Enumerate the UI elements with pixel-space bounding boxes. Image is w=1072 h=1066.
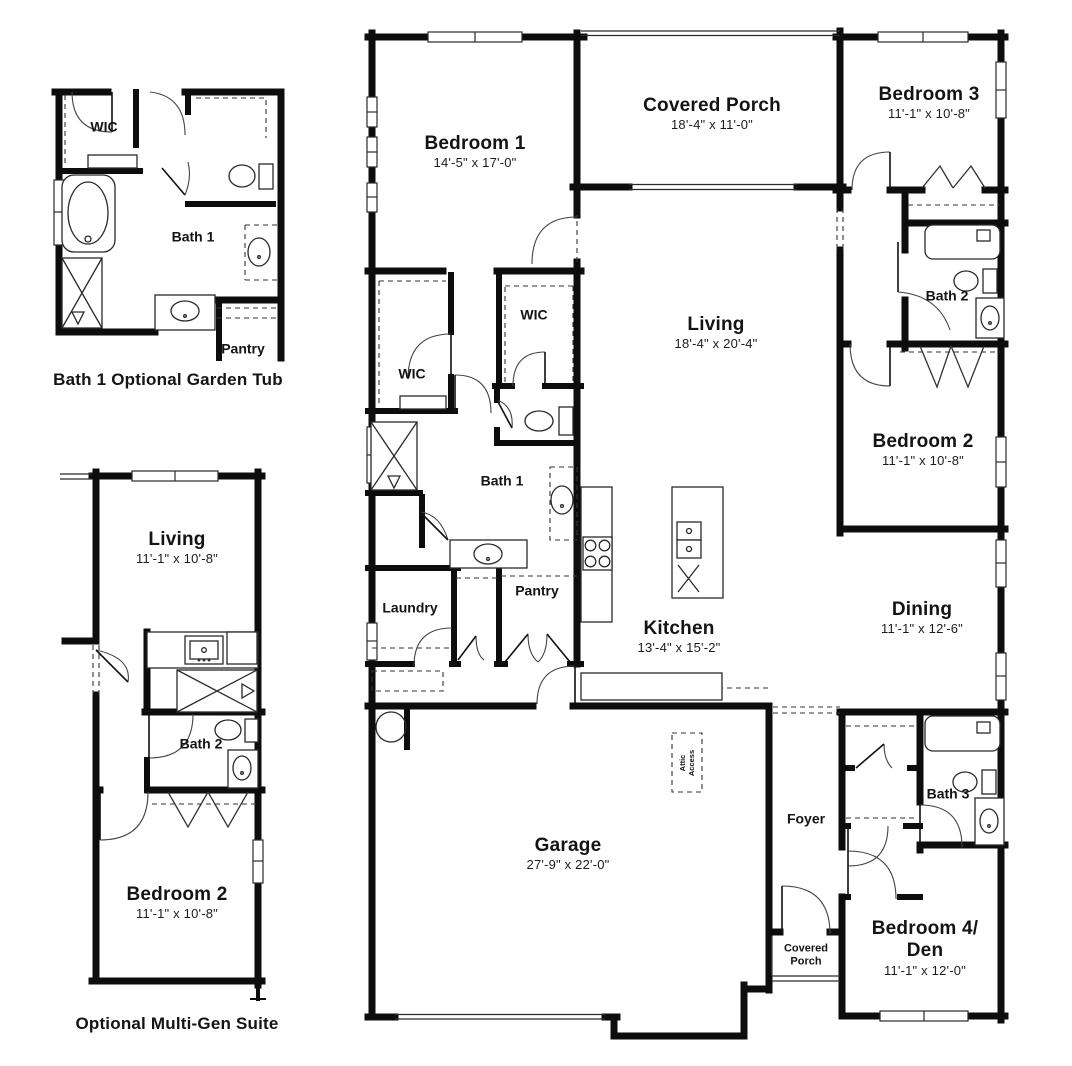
- inset-a-caption: Bath 1 Optional Garden Tub: [53, 370, 283, 390]
- floorplan-page: Bedroom 1 14'-5" x 17'-0" Covered Porch …: [0, 0, 1072, 1066]
- room-dims: 18'-4" x 11'-0": [643, 118, 781, 133]
- room-name: Dining: [881, 599, 963, 621]
- room-name: Bedroom 2: [872, 431, 973, 453]
- room-name: Living: [136, 529, 218, 551]
- room-label-bedroom2: Bedroom 2 11'-1" x 10'-8": [872, 431, 973, 469]
- inset-b-label-living: Living 11'-1" x 10'-8": [136, 529, 218, 567]
- room-label-pantry: Pantry: [515, 583, 559, 600]
- room-dims: 27'-9" x 22'-0": [527, 858, 610, 873]
- bathtub-icon: [925, 225, 1000, 259]
- garden-tub-icon: [62, 175, 115, 252]
- room-label-covered-porch: Covered Porch 18'-4" x 11'-0": [643, 95, 781, 133]
- porch-line2: Porch: [784, 955, 828, 968]
- inset-a-label-pantry: Pantry: [221, 341, 265, 358]
- sink-icon: [228, 750, 258, 788]
- room-label-bath2: Bath 2: [926, 288, 969, 305]
- bathtub-icon: [925, 716, 1000, 751]
- room-label-bedroom3: Bedroom 3 11'-1" x 10'-8": [878, 84, 979, 122]
- room-label-wic-top: WIC: [520, 307, 547, 324]
- fixtures-inset-garden-tub: [62, 155, 273, 330]
- room-dims: 11'-1" x 10'-8": [126, 907, 227, 922]
- wic-bench: [88, 155, 137, 168]
- sink-icon: [551, 486, 573, 514]
- inset-a-label-bath1: Bath 1: [172, 229, 215, 246]
- water-heater-icon: [376, 712, 406, 742]
- door-swings: [72, 92, 985, 934]
- island-sink-icon: [677, 522, 701, 558]
- fixtures-bath1: [371, 396, 573, 568]
- room-name: Garage: [527, 835, 610, 857]
- shower-icon: [371, 422, 417, 490]
- range-icon: [583, 537, 612, 570]
- room-name-line1: Bedroom 4/: [872, 918, 979, 940]
- wic-bench: [400, 396, 446, 409]
- room-label-wic-left: WIC: [398, 366, 425, 383]
- kitchenette-cabinet: [227, 632, 257, 664]
- vanity-sink-icon: [450, 540, 527, 568]
- room-name-line2: Den: [872, 940, 979, 962]
- room-label-bath3: Bath 3: [927, 786, 970, 803]
- room-name: Living: [675, 314, 758, 336]
- inset-b-caption: Optional Multi-Gen Suite: [75, 1014, 278, 1034]
- room-label-bath1: Bath 1: [481, 473, 524, 490]
- room-label-bedroom4-den: Bedroom 4/ Den 11'-1" x 12'-0": [872, 918, 979, 978]
- room-dims: 11'-1" x 10'-8": [872, 454, 973, 469]
- room-label-covered-porch-bottom: Covered Porch: [784, 942, 828, 967]
- room-label-garage: Garage 27'-9" x 22'-0": [527, 835, 610, 873]
- room-dims: 11'-1" x 10'-8": [136, 552, 218, 567]
- sink-icon: [248, 238, 270, 266]
- shower-icon: [62, 258, 102, 328]
- room-dims: 18'-4" x 20'-4": [675, 337, 758, 352]
- room-name: Kitchen: [638, 618, 721, 640]
- kitchenette-sink-icon: [185, 636, 223, 664]
- attic-line1: Attic: [678, 750, 687, 776]
- room-label-dining: Dining 11'-1" x 12'-6": [881, 599, 963, 637]
- fixtures-bath3: [925, 716, 1004, 845]
- sink-icon: [976, 298, 1004, 338]
- room-dims: 11'-1" x 12'-0": [872, 963, 979, 978]
- room-dims: 11'-1" x 10'-8": [878, 107, 979, 122]
- room-label-laundry: Laundry: [382, 600, 437, 617]
- room-label-living: Living 18'-4" x 20'-4": [675, 314, 758, 352]
- sink-icon: [975, 798, 1004, 845]
- room-dims: 13'-4" x 15'-2": [638, 641, 721, 656]
- room-label-kitchen: Kitchen 13'-4" x 15'-2": [638, 618, 721, 656]
- porch-line1: Covered: [784, 942, 828, 955]
- room-name: Covered Porch: [643, 95, 781, 117]
- room-label-bedroom1: Bedroom 1 14'-5" x 17'-0": [424, 133, 525, 171]
- attic-line2: Access: [687, 750, 696, 776]
- room-dims: 11'-1" x 12'-6": [881, 622, 963, 637]
- inset-a-label-wic: WIC: [90, 119, 117, 136]
- toilet-icon: [229, 164, 273, 189]
- toilet-icon: [525, 407, 573, 435]
- room-label-foyer: Foyer: [787, 811, 825, 828]
- inset-b-label-bedroom2: Bedroom 2 11'-1" x 10'-8": [126, 884, 227, 922]
- fixtures-bath2: [925, 225, 1004, 338]
- inset-b-label-bath2: Bath 2: [180, 736, 223, 753]
- vanity-sink-icon: [155, 295, 215, 330]
- room-name: Bedroom 2: [126, 884, 227, 906]
- counter-bottom: [581, 673, 722, 700]
- room-dims: 14'-5" x 17'-0": [424, 156, 525, 171]
- room-name: Bedroom 3: [878, 84, 979, 106]
- room-name: Bedroom 1: [424, 133, 525, 155]
- label-attic-access: Attic Access: [678, 750, 696, 776]
- washer-dryer-icon: [177, 670, 257, 712]
